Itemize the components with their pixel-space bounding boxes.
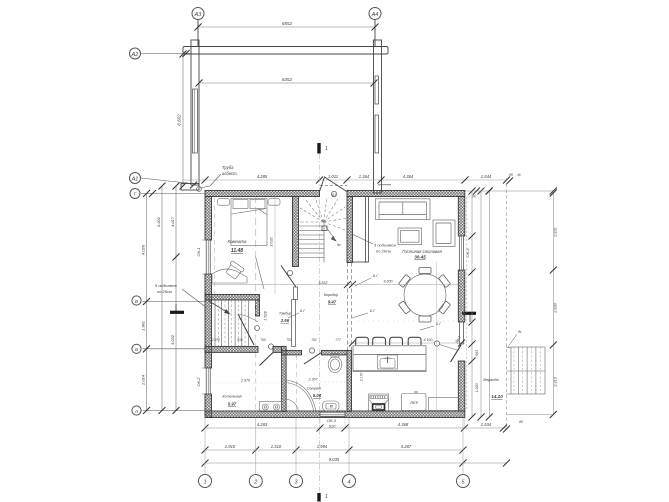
svg-text:REF.: REF. <box>410 400 419 405</box>
svg-text:9.035: 9.035 <box>329 457 340 462</box>
svg-text:ОК-3: ОК-3 <box>465 248 470 258</box>
svg-text:1.981: 1.981 <box>141 321 146 331</box>
svg-text:Коридор: Коридор <box>324 293 338 297</box>
svg-text:2.970: 2.970 <box>240 379 250 383</box>
svg-text:9.47: 9.47 <box>328 300 337 305</box>
svg-text:Санузел: Санузел <box>307 387 321 391</box>
svg-text:1: 1 <box>203 480 206 486</box>
svg-text:6.602: 6.602 <box>156 216 161 227</box>
svg-text:2.313: 2.313 <box>554 376 558 387</box>
svg-text:760: 760 <box>260 338 266 342</box>
svg-text:4.283: 4.283 <box>257 422 268 427</box>
svg-text:ОК-1: ОК-1 <box>196 247 201 256</box>
svg-text:2.56: 2.56 <box>280 318 290 323</box>
svg-text:1.364: 1.364 <box>359 174 370 179</box>
svg-text:4.368: 4.368 <box>398 422 409 427</box>
svg-text:Б: Б <box>135 347 138 353</box>
svg-text:6.602: 6.602 <box>177 114 182 126</box>
svg-text:Д1: Д1 <box>332 193 336 197</box>
svg-text:6352: 6352 <box>282 77 293 82</box>
svg-text:4.287: 4.287 <box>401 444 412 449</box>
svg-text:6 подъемов: 6 подъемов <box>374 243 396 248</box>
svg-text:по 26см: по 26см <box>376 249 391 254</box>
svg-text:А1: А1 <box>131 177 139 183</box>
svg-text:асбест.: асбест. <box>222 171 238 176</box>
svg-text:4.200: 4.200 <box>384 280 393 284</box>
svg-text:1.910: 1.910 <box>225 444 236 449</box>
svg-text:1.544: 1.544 <box>481 174 492 179</box>
svg-text:4.100: 4.100 <box>424 338 433 342</box>
svg-text:А: А <box>134 409 138 415</box>
svg-text:ОК-2: ОК-2 <box>196 377 201 387</box>
svg-text:2.170: 2.170 <box>360 373 364 383</box>
svg-text:дб: дб <box>509 173 513 177</box>
svg-text:дс: дс <box>518 330 522 334</box>
svg-text:А4: А4 <box>371 12 379 18</box>
svg-text:Тамбур: Тамбур <box>279 312 291 316</box>
svg-text:702: 702 <box>286 338 292 342</box>
svg-text:2.307: 2.307 <box>308 378 319 382</box>
svg-text:дб: дб <box>472 195 476 199</box>
svg-text:Веранда: Веранда <box>483 378 498 382</box>
svg-text:1.510: 1.510 <box>271 444 282 449</box>
svg-text:5.97: 5.97 <box>228 402 237 407</box>
svg-text:2.014: 2.014 <box>141 374 146 386</box>
svg-text:3.632: 3.632 <box>270 236 274 246</box>
svg-text:2.830: 2.830 <box>554 302 558 313</box>
svg-text:777: 777 <box>335 338 341 342</box>
svg-text:2: 2 <box>253 480 257 486</box>
svg-text:762: 762 <box>311 338 317 342</box>
svg-text:4.364: 4.364 <box>403 174 414 179</box>
svg-text:Гостиная столовая: Гостиная столовая <box>402 249 442 254</box>
svg-text:1.534: 1.534 <box>481 422 492 427</box>
svg-text:Труба: Труба <box>222 165 234 170</box>
svg-text:по 26см: по 26см <box>157 289 172 294</box>
svg-text:Г: Г <box>134 192 137 198</box>
svg-text:6552: 6552 <box>282 21 293 26</box>
svg-text:6с: 6с <box>337 243 341 247</box>
svg-text:30.45: 30.45 <box>414 255 426 260</box>
svg-text:А3: А3 <box>194 12 203 18</box>
svg-text:810: 810 <box>237 338 243 342</box>
svg-text:А2: А2 <box>131 52 139 58</box>
svg-text:5.08: 5.08 <box>313 393 322 398</box>
svg-text:14.10: 14.10 <box>491 394 503 399</box>
svg-text:1.970: 1.970 <box>212 338 220 342</box>
svg-text:дб: дб <box>519 420 523 424</box>
svg-text:ОК-3: ОК-3 <box>327 418 337 423</box>
svg-text:4.032: 4.032 <box>170 334 175 345</box>
svg-text:2.831: 2.831 <box>554 227 558 238</box>
svg-text:Комната: Комната <box>228 239 248 244</box>
svg-text:4: 4 <box>347 480 350 486</box>
svg-text:4.017: 4.017 <box>170 216 175 227</box>
svg-text:1: 1 <box>325 146 328 152</box>
svg-text:1.011: 1.011 <box>328 174 338 179</box>
svg-text:дс: дс <box>518 173 522 177</box>
svg-text:4.285: 4.285 <box>257 174 268 179</box>
svg-text:1: 1 <box>325 494 328 500</box>
svg-text:4.028: 4.028 <box>141 244 146 255</box>
svg-text:11.48: 11.48 <box>231 248 243 254</box>
svg-text:Котельная: Котельная <box>222 395 241 399</box>
svg-text:903: 903 <box>475 350 479 356</box>
svg-text:1.528: 1.528 <box>264 310 268 320</box>
svg-text:1.920: 1.920 <box>475 384 479 393</box>
svg-text:1.994: 1.994 <box>317 444 328 449</box>
svg-text:910: 910 <box>329 424 336 429</box>
svg-text:5 подъемов: 5 подъемов <box>155 283 177 288</box>
